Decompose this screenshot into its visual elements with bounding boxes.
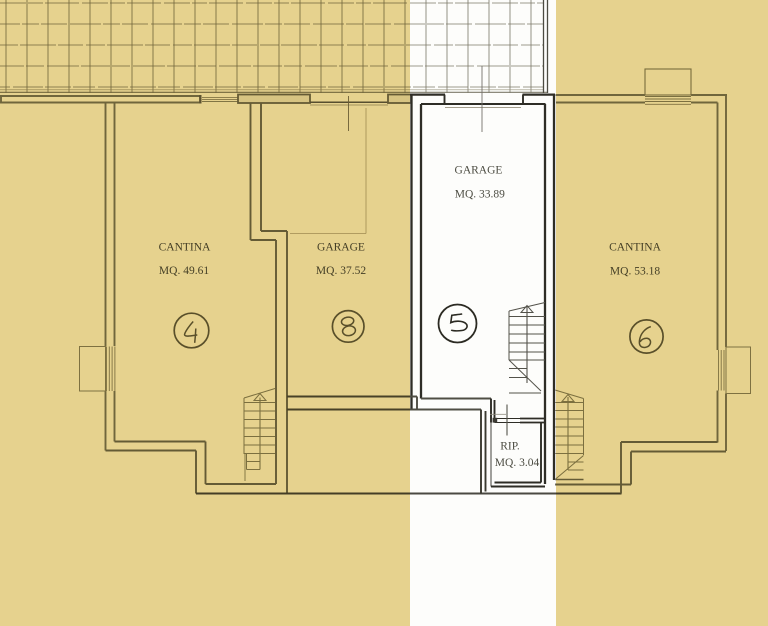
svg-text:MQ. 3.04: MQ. 3.04	[495, 457, 540, 469]
svg-text:MQ. 33.89: MQ. 33.89	[455, 189, 505, 201]
svg-text:RIP.: RIP.	[500, 441, 520, 453]
svg-text:GARAGE: GARAGE	[455, 165, 503, 177]
